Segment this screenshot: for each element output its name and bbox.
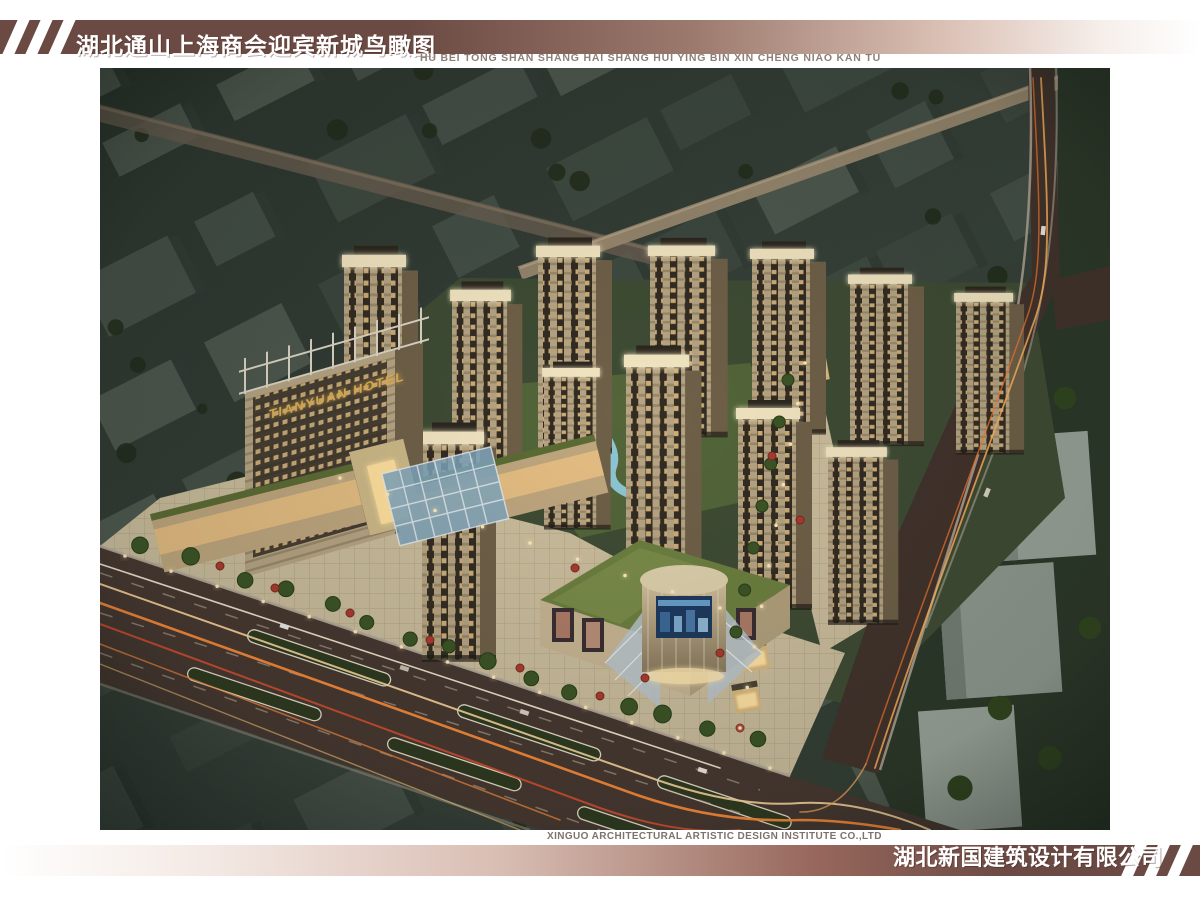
design-institute-credit: XINGUO ARCHITECTURAL ARTISTIC DESIGN INS… <box>547 831 882 842</box>
footer-stripe-icon <box>1167 845 1193 876</box>
aerial-rendering: TIANYUAN HOTEL <box>100 68 1110 830</box>
company-name: 湖北新国建筑设计有限公司 <box>893 840 1163 872</box>
header-stripe-icon <box>25 20 52 54</box>
page-title: 湖北通山上海商会迎宾新城鸟瞰图 <box>76 27 436 61</box>
header-stripe-icon <box>48 20 75 54</box>
vignette-overlay <box>100 68 1110 830</box>
header-stripe-icon <box>2 20 29 54</box>
aerial-rendering-canvas: TIANYUAN HOTEL <box>100 68 1110 830</box>
page-title-pinyin: HU BEI TONG SHAN SHANG HAI SHANG HUI YIN… <box>420 52 881 64</box>
